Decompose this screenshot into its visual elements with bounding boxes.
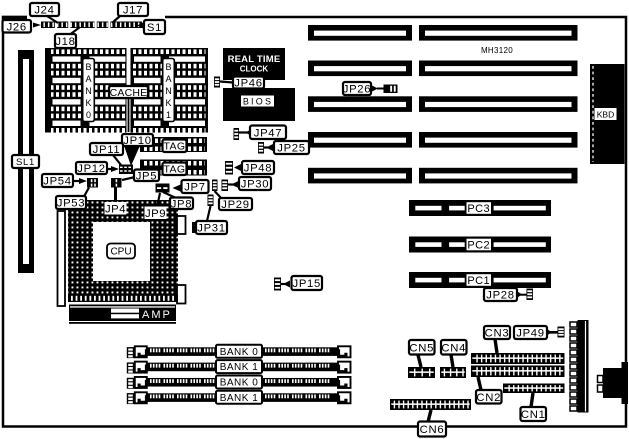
svg-text:JP26: JP26 — [343, 84, 372, 96]
svg-text:JP47: JP47 — [254, 127, 283, 139]
svg-text:BANK 0: BANK 0 — [220, 378, 259, 389]
svg-text:J17: J17 — [123, 5, 143, 17]
svg-text:A: A — [165, 74, 171, 84]
svg-text:SL1: SL1 — [16, 157, 35, 168]
svg-text:JP7: JP7 — [184, 182, 206, 194]
svg-text:JP28: JP28 — [486, 290, 515, 302]
svg-text:JP15: JP15 — [292, 278, 321, 290]
svg-text:J18: J18 — [55, 36, 75, 48]
svg-text:J24: J24 — [34, 5, 54, 17]
svg-text:JP4: JP4 — [105, 203, 126, 215]
svg-text:BANK 1: BANK 1 — [220, 362, 259, 373]
svg-text:S1: S1 — [147, 22, 162, 34]
svg-text:JP12: JP12 — [77, 163, 106, 175]
svg-text:N: N — [85, 86, 92, 96]
svg-text:CN1: CN1 — [521, 409, 546, 421]
svg-text:K: K — [165, 98, 171, 108]
svg-text:JP10: JP10 — [123, 135, 152, 147]
svg-text:JP30: JP30 — [241, 179, 270, 191]
svg-text:JP25: JP25 — [277, 143, 306, 155]
svg-text:N: N — [165, 86, 172, 96]
svg-text:AMP: AMP — [142, 309, 172, 321]
svg-text:PC2: PC2 — [467, 240, 490, 252]
svg-text:TAG: TAG — [163, 164, 185, 176]
svg-text:B: B — [85, 62, 91, 72]
svg-text:JP48: JP48 — [244, 163, 273, 175]
svg-text:BIOS: BIOS — [243, 97, 273, 107]
svg-text:CN2: CN2 — [476, 392, 501, 404]
svg-text:1: 1 — [166, 110, 171, 120]
svg-text:MH3120: MH3120 — [481, 46, 513, 55]
svg-text:PC1: PC1 — [467, 275, 490, 287]
svg-text:TAG: TAG — [163, 141, 185, 153]
svg-text:A: A — [85, 74, 91, 84]
svg-text:CLOCK: CLOCK — [240, 65, 269, 74]
svg-text:CPU: CPU — [110, 247, 131, 258]
svg-text:JP29: JP29 — [221, 199, 250, 211]
svg-text:J26: J26 — [7, 21, 27, 33]
svg-text:CN4: CN4 — [441, 342, 466, 354]
svg-text:BANK 1: BANK 1 — [220, 393, 259, 404]
svg-text:CACHE: CACHE — [110, 87, 148, 99]
svg-text:JP31: JP31 — [197, 223, 226, 235]
svg-text:PC3: PC3 — [467, 203, 490, 215]
svg-text:CN3: CN3 — [485, 328, 510, 340]
svg-text:JP53: JP53 — [57, 198, 86, 210]
svg-text:CN5: CN5 — [409, 342, 434, 354]
svg-text:JP54: JP54 — [43, 176, 72, 188]
svg-text:JP9: JP9 — [145, 208, 166, 220]
svg-text:JP49: JP49 — [516, 328, 545, 340]
svg-text:JP8: JP8 — [171, 198, 193, 210]
svg-text:CN6: CN6 — [420, 424, 445, 436]
svg-text:JP5: JP5 — [136, 170, 158, 182]
svg-text:KBD: KBD — [597, 109, 614, 119]
svg-text:JP46: JP46 — [234, 78, 263, 90]
svg-text:JP11: JP11 — [93, 144, 121, 156]
svg-text:REAL TIME: REAL TIME — [228, 54, 281, 65]
svg-text:0: 0 — [86, 110, 91, 120]
svg-text:B: B — [165, 62, 171, 72]
svg-text:K: K — [85, 98, 91, 108]
svg-text:BANK 0: BANK 0 — [220, 347, 259, 358]
